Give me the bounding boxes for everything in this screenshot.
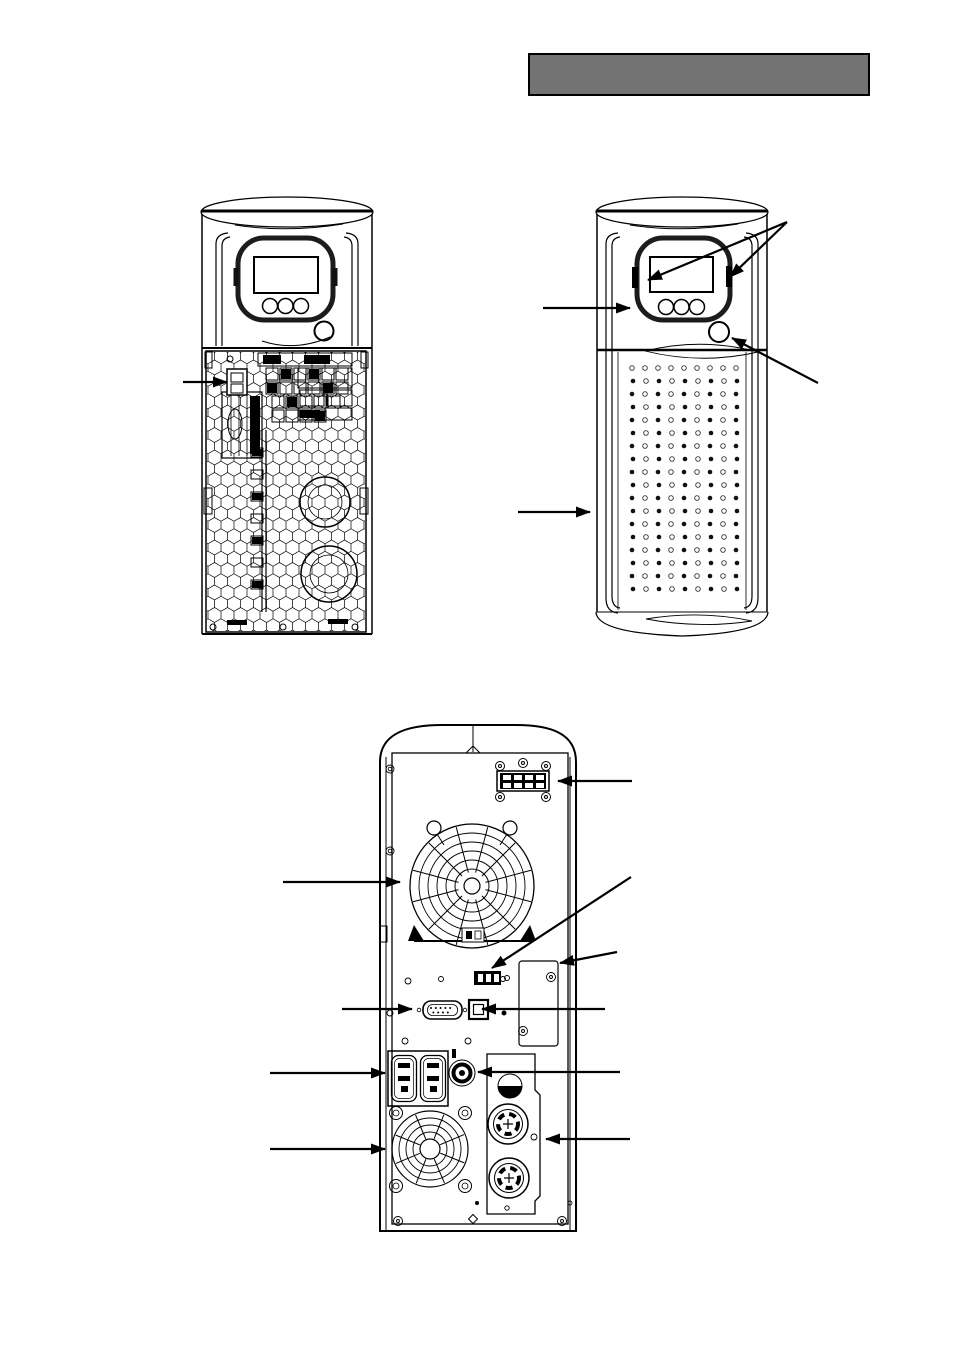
vent-hole bbox=[631, 587, 636, 592]
vent-hole bbox=[734, 522, 739, 527]
vent-hole bbox=[643, 522, 648, 527]
vent-hole bbox=[709, 405, 714, 410]
vent-hole bbox=[657, 535, 662, 540]
vent-hole bbox=[734, 444, 739, 449]
vent-hole bbox=[735, 587, 740, 592]
vent-hole bbox=[721, 574, 726, 579]
vent-hole bbox=[631, 379, 636, 384]
vent-hole bbox=[682, 470, 687, 475]
figure-front-closed bbox=[596, 197, 768, 636]
vent-hole bbox=[682, 574, 687, 579]
vent-hole bbox=[656, 496, 661, 501]
vent-hole bbox=[656, 418, 661, 423]
power-button bbox=[315, 322, 334, 341]
vent-hole bbox=[644, 379, 649, 384]
vent-hole bbox=[722, 405, 727, 410]
vent-hole bbox=[670, 379, 675, 384]
vent-hole bbox=[643, 366, 648, 371]
vent-hole bbox=[734, 418, 739, 423]
figure-rear bbox=[380, 725, 576, 1231]
vent-hole bbox=[735, 509, 740, 514]
vent-hole bbox=[631, 405, 636, 410]
vent-hole bbox=[630, 444, 635, 449]
vent-hole bbox=[656, 548, 661, 553]
vent-hole bbox=[734, 548, 739, 553]
vent-hole bbox=[670, 535, 675, 540]
vent-hole bbox=[682, 444, 687, 449]
vent-hole bbox=[696, 457, 701, 462]
vent-hole bbox=[722, 431, 727, 436]
vent-hole bbox=[630, 470, 635, 475]
vent-hole bbox=[683, 457, 688, 462]
vent-hole bbox=[643, 574, 648, 579]
vent-hole bbox=[656, 522, 661, 527]
vent-hole bbox=[709, 483, 714, 488]
vent-hole bbox=[735, 431, 740, 436]
vent-hole bbox=[722, 483, 727, 488]
ventilation-perforations bbox=[630, 366, 740, 592]
vent-hole bbox=[657, 457, 662, 462]
vent-hole bbox=[670, 405, 675, 410]
vent-hole bbox=[630, 392, 635, 397]
vent-hole bbox=[644, 405, 649, 410]
vent-hole bbox=[722, 509, 727, 514]
vent-hole bbox=[709, 561, 714, 566]
vent-hole bbox=[644, 535, 649, 540]
vent-hole bbox=[657, 561, 662, 566]
vent-hole bbox=[682, 366, 687, 371]
vent-hole bbox=[643, 548, 648, 553]
vent-hole bbox=[734, 496, 739, 501]
vent-hole bbox=[682, 496, 687, 501]
vent-hole bbox=[735, 405, 740, 410]
vent-hole bbox=[669, 418, 674, 423]
vent-hole bbox=[682, 418, 687, 423]
side-pillar-left bbox=[216, 233, 230, 346]
vent-hole bbox=[683, 587, 688, 592]
vent-hole bbox=[683, 561, 688, 566]
vent-hole bbox=[721, 548, 726, 553]
vent-hole bbox=[695, 574, 700, 579]
vent-hole bbox=[683, 483, 688, 488]
vent-hole bbox=[644, 509, 649, 514]
vent-hole bbox=[722, 535, 727, 540]
vent-hole bbox=[683, 379, 688, 384]
vent-hole bbox=[630, 522, 635, 527]
vent-hole bbox=[669, 470, 674, 475]
vent-hole bbox=[656, 470, 661, 475]
output-connector-1 bbox=[488, 1104, 528, 1144]
vent-hole bbox=[708, 470, 713, 475]
vent-hole bbox=[721, 470, 726, 475]
vent-hole bbox=[669, 444, 674, 449]
vent-hole bbox=[669, 574, 674, 579]
vent-hole bbox=[696, 561, 701, 566]
vent-hole bbox=[669, 522, 674, 527]
vent-hole bbox=[683, 509, 688, 514]
vent-hole bbox=[670, 431, 675, 436]
vent-hole bbox=[644, 587, 649, 592]
vent-hole bbox=[683, 431, 688, 436]
manual-page bbox=[0, 0, 954, 1349]
vent-hole bbox=[734, 392, 739, 397]
vent-hole bbox=[630, 548, 635, 553]
vent-hole bbox=[670, 483, 675, 488]
vent-hole bbox=[721, 366, 726, 371]
vent-hole bbox=[657, 405, 662, 410]
vent-hole bbox=[631, 483, 636, 488]
vent-hole bbox=[656, 392, 661, 397]
vent-hole bbox=[708, 548, 713, 553]
vent-hole bbox=[708, 522, 713, 527]
vent-hole bbox=[696, 405, 701, 410]
vent-hole bbox=[670, 509, 675, 514]
vent-hole bbox=[657, 587, 662, 592]
vent-hole bbox=[708, 574, 713, 579]
vent-hole bbox=[709, 535, 714, 540]
vent-hole bbox=[669, 496, 674, 501]
vent-hole bbox=[631, 457, 636, 462]
vent-hole bbox=[735, 483, 740, 488]
vent-hole bbox=[709, 509, 714, 514]
vent-hole bbox=[734, 574, 739, 579]
battery-connector bbox=[227, 369, 247, 395]
vent-hole bbox=[695, 392, 700, 397]
vent-hole bbox=[644, 483, 649, 488]
side-pillar-right bbox=[344, 233, 358, 346]
vent-hole bbox=[630, 574, 635, 579]
vent-hole bbox=[643, 496, 648, 501]
vent-hole bbox=[631, 561, 636, 566]
vent-hole bbox=[709, 457, 714, 462]
vent-hole bbox=[696, 431, 701, 436]
vent-hole bbox=[656, 444, 661, 449]
vent-hole bbox=[630, 496, 635, 501]
power-button bbox=[709, 322, 729, 342]
vent-hole bbox=[643, 444, 648, 449]
vent-hole bbox=[669, 392, 674, 397]
vent-hole bbox=[721, 496, 726, 501]
vent-hole bbox=[721, 392, 726, 397]
vent-hole bbox=[644, 457, 649, 462]
vent-hole bbox=[670, 587, 675, 592]
vent-hole bbox=[670, 561, 675, 566]
vent-hole bbox=[722, 379, 727, 384]
vent-hole bbox=[695, 366, 700, 371]
vent-hole bbox=[721, 522, 726, 527]
vent-hole bbox=[643, 392, 648, 397]
vent-hole bbox=[631, 509, 636, 514]
vent-hole bbox=[722, 587, 727, 592]
output-connector-2 bbox=[489, 1158, 529, 1198]
vent-hole bbox=[695, 522, 700, 527]
vent-hole bbox=[734, 470, 739, 475]
vent-hole bbox=[644, 561, 649, 566]
vent-hole bbox=[657, 483, 662, 488]
vent-hole bbox=[696, 535, 701, 540]
vent-hole bbox=[695, 418, 700, 423]
vent-hole bbox=[682, 522, 687, 527]
vent-hole bbox=[695, 444, 700, 449]
vent-hole bbox=[708, 496, 713, 501]
vent-hole bbox=[657, 509, 662, 514]
callout-power-button bbox=[732, 338, 818, 383]
vent-hole bbox=[709, 587, 714, 592]
vent-hole bbox=[696, 587, 701, 592]
vent-hole bbox=[669, 548, 674, 553]
vent-hole bbox=[631, 431, 636, 436]
vent-hole bbox=[631, 535, 636, 540]
vent-hole bbox=[708, 392, 713, 397]
panel-latch-left bbox=[632, 267, 638, 288]
figure-front-open bbox=[201, 197, 373, 634]
vent-hole bbox=[695, 548, 700, 553]
vent-hole bbox=[643, 470, 648, 475]
vent-hole bbox=[696, 483, 701, 488]
vent-hole bbox=[735, 561, 740, 566]
front-cover bbox=[596, 344, 768, 636]
vent-hole bbox=[630, 418, 635, 423]
vent-hole bbox=[721, 444, 726, 449]
vent-hole bbox=[722, 561, 727, 566]
vent-hole bbox=[657, 431, 662, 436]
vent-hole bbox=[735, 457, 740, 462]
vent-hole bbox=[630, 366, 635, 371]
vent-hole bbox=[721, 418, 726, 423]
vent-hole bbox=[670, 457, 675, 462]
vent-hole bbox=[696, 379, 701, 384]
vent-hole bbox=[656, 574, 661, 579]
vent-hole bbox=[708, 366, 713, 371]
vent-hole bbox=[695, 470, 700, 475]
vent-hole bbox=[708, 444, 713, 449]
vent-hole bbox=[734, 366, 739, 371]
vent-hole bbox=[643, 418, 648, 423]
control-panel-bezel bbox=[234, 238, 338, 320]
vent-hole bbox=[644, 431, 649, 436]
vent-hole bbox=[709, 379, 714, 384]
vent-hole bbox=[682, 392, 687, 397]
vent-hole bbox=[682, 548, 687, 553]
vent-hole bbox=[735, 535, 740, 540]
vent-hole bbox=[722, 457, 727, 462]
ups-diagrams bbox=[0, 0, 954, 1349]
vent-hole bbox=[709, 431, 714, 436]
vent-hole bbox=[657, 379, 662, 384]
vent-hole bbox=[696, 509, 701, 514]
internal-chassis bbox=[204, 351, 368, 632]
vent-hole bbox=[656, 366, 661, 371]
vent-hole bbox=[735, 379, 740, 384]
vent-hole bbox=[669, 366, 674, 371]
vent-hole bbox=[695, 496, 700, 501]
vent-hole bbox=[683, 405, 688, 410]
vent-hole bbox=[683, 535, 688, 540]
vent-hole bbox=[708, 418, 713, 423]
